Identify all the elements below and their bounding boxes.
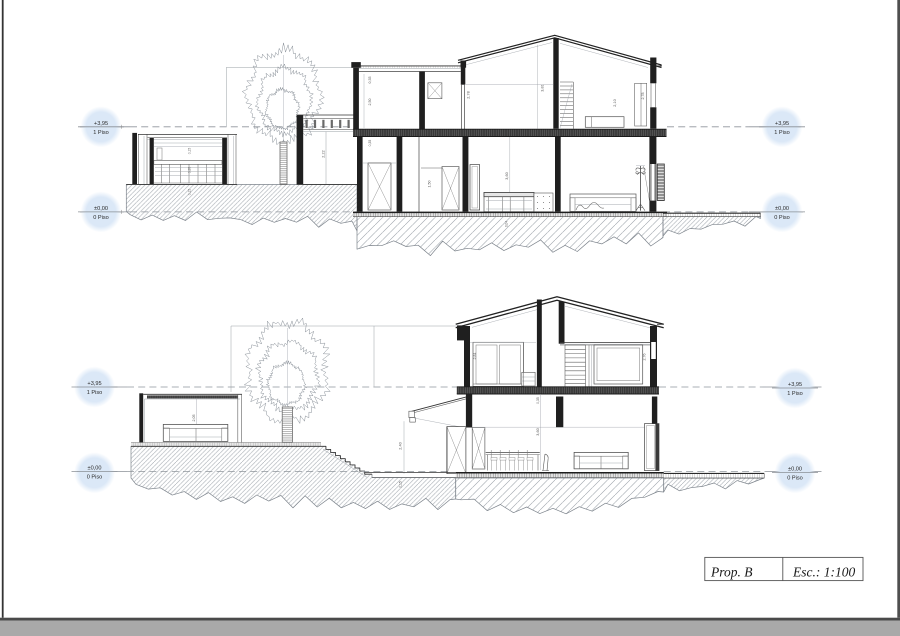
svg-text:Prop. B: Prop. B bbox=[710, 565, 753, 580]
svg-text:0 Piso: 0 Piso bbox=[774, 215, 790, 221]
svg-text:0 Piso: 0 Piso bbox=[93, 215, 109, 221]
svg-text:3,60: 3,60 bbox=[536, 428, 540, 435]
svg-text:1,50: 1,50 bbox=[428, 181, 432, 188]
svg-text:2,78: 2,78 bbox=[466, 91, 470, 98]
svg-text:3,81: 3,81 bbox=[541, 84, 545, 91]
svg-text:1 Piso: 1 Piso bbox=[93, 130, 109, 136]
svg-text:±0,00: ±0,00 bbox=[775, 206, 789, 212]
svg-text:0,35: 0,35 bbox=[368, 77, 372, 84]
svg-text:2,22: 2,22 bbox=[321, 150, 325, 157]
svg-text:2,40: 2,40 bbox=[399, 442, 403, 449]
svg-text:2,05: 2,05 bbox=[192, 415, 196, 422]
svg-text:0 Piso: 0 Piso bbox=[87, 474, 103, 480]
svg-text:+3,95: +3,95 bbox=[94, 121, 108, 127]
svg-text:0 Piso: 0 Piso bbox=[787, 476, 803, 482]
svg-text:0,35: 0,35 bbox=[536, 397, 540, 404]
svg-text:2,50: 2,50 bbox=[368, 99, 372, 106]
svg-text:2,10: 2,10 bbox=[613, 99, 617, 106]
svg-text:1 Piso: 1 Piso bbox=[774, 130, 790, 136]
svg-text:0,35: 0,35 bbox=[187, 167, 191, 174]
svg-text:0,15: 0,15 bbox=[187, 189, 191, 196]
svg-text:Esc.: 1:100: Esc.: 1:100 bbox=[792, 565, 855, 580]
svg-text:2,78: 2,78 bbox=[641, 93, 645, 100]
svg-text:1 Piso: 1 Piso bbox=[87, 390, 103, 396]
svg-text:+3,95: +3,95 bbox=[788, 382, 802, 388]
svg-text:±0,00: ±0,00 bbox=[94, 206, 108, 212]
svg-text:0,04: 0,04 bbox=[505, 221, 509, 227]
svg-text:+3,95: +3,95 bbox=[775, 121, 789, 127]
svg-text:1 Piso: 1 Piso bbox=[787, 391, 803, 397]
svg-text:±0,00: ±0,00 bbox=[788, 467, 802, 473]
svg-text:2,81: 2,81 bbox=[473, 353, 477, 360]
svg-text:2,76: 2,76 bbox=[642, 354, 646, 361]
svg-text:0,15: 0,15 bbox=[399, 481, 403, 488]
svg-text:0,35: 0,35 bbox=[368, 140, 372, 147]
svg-text:+3,95: +3,95 bbox=[87, 381, 101, 387]
svg-text:3,60: 3,60 bbox=[505, 172, 509, 179]
svg-text:±0,00: ±0,00 bbox=[88, 465, 102, 471]
svg-text:0,15: 0,15 bbox=[187, 148, 191, 155]
